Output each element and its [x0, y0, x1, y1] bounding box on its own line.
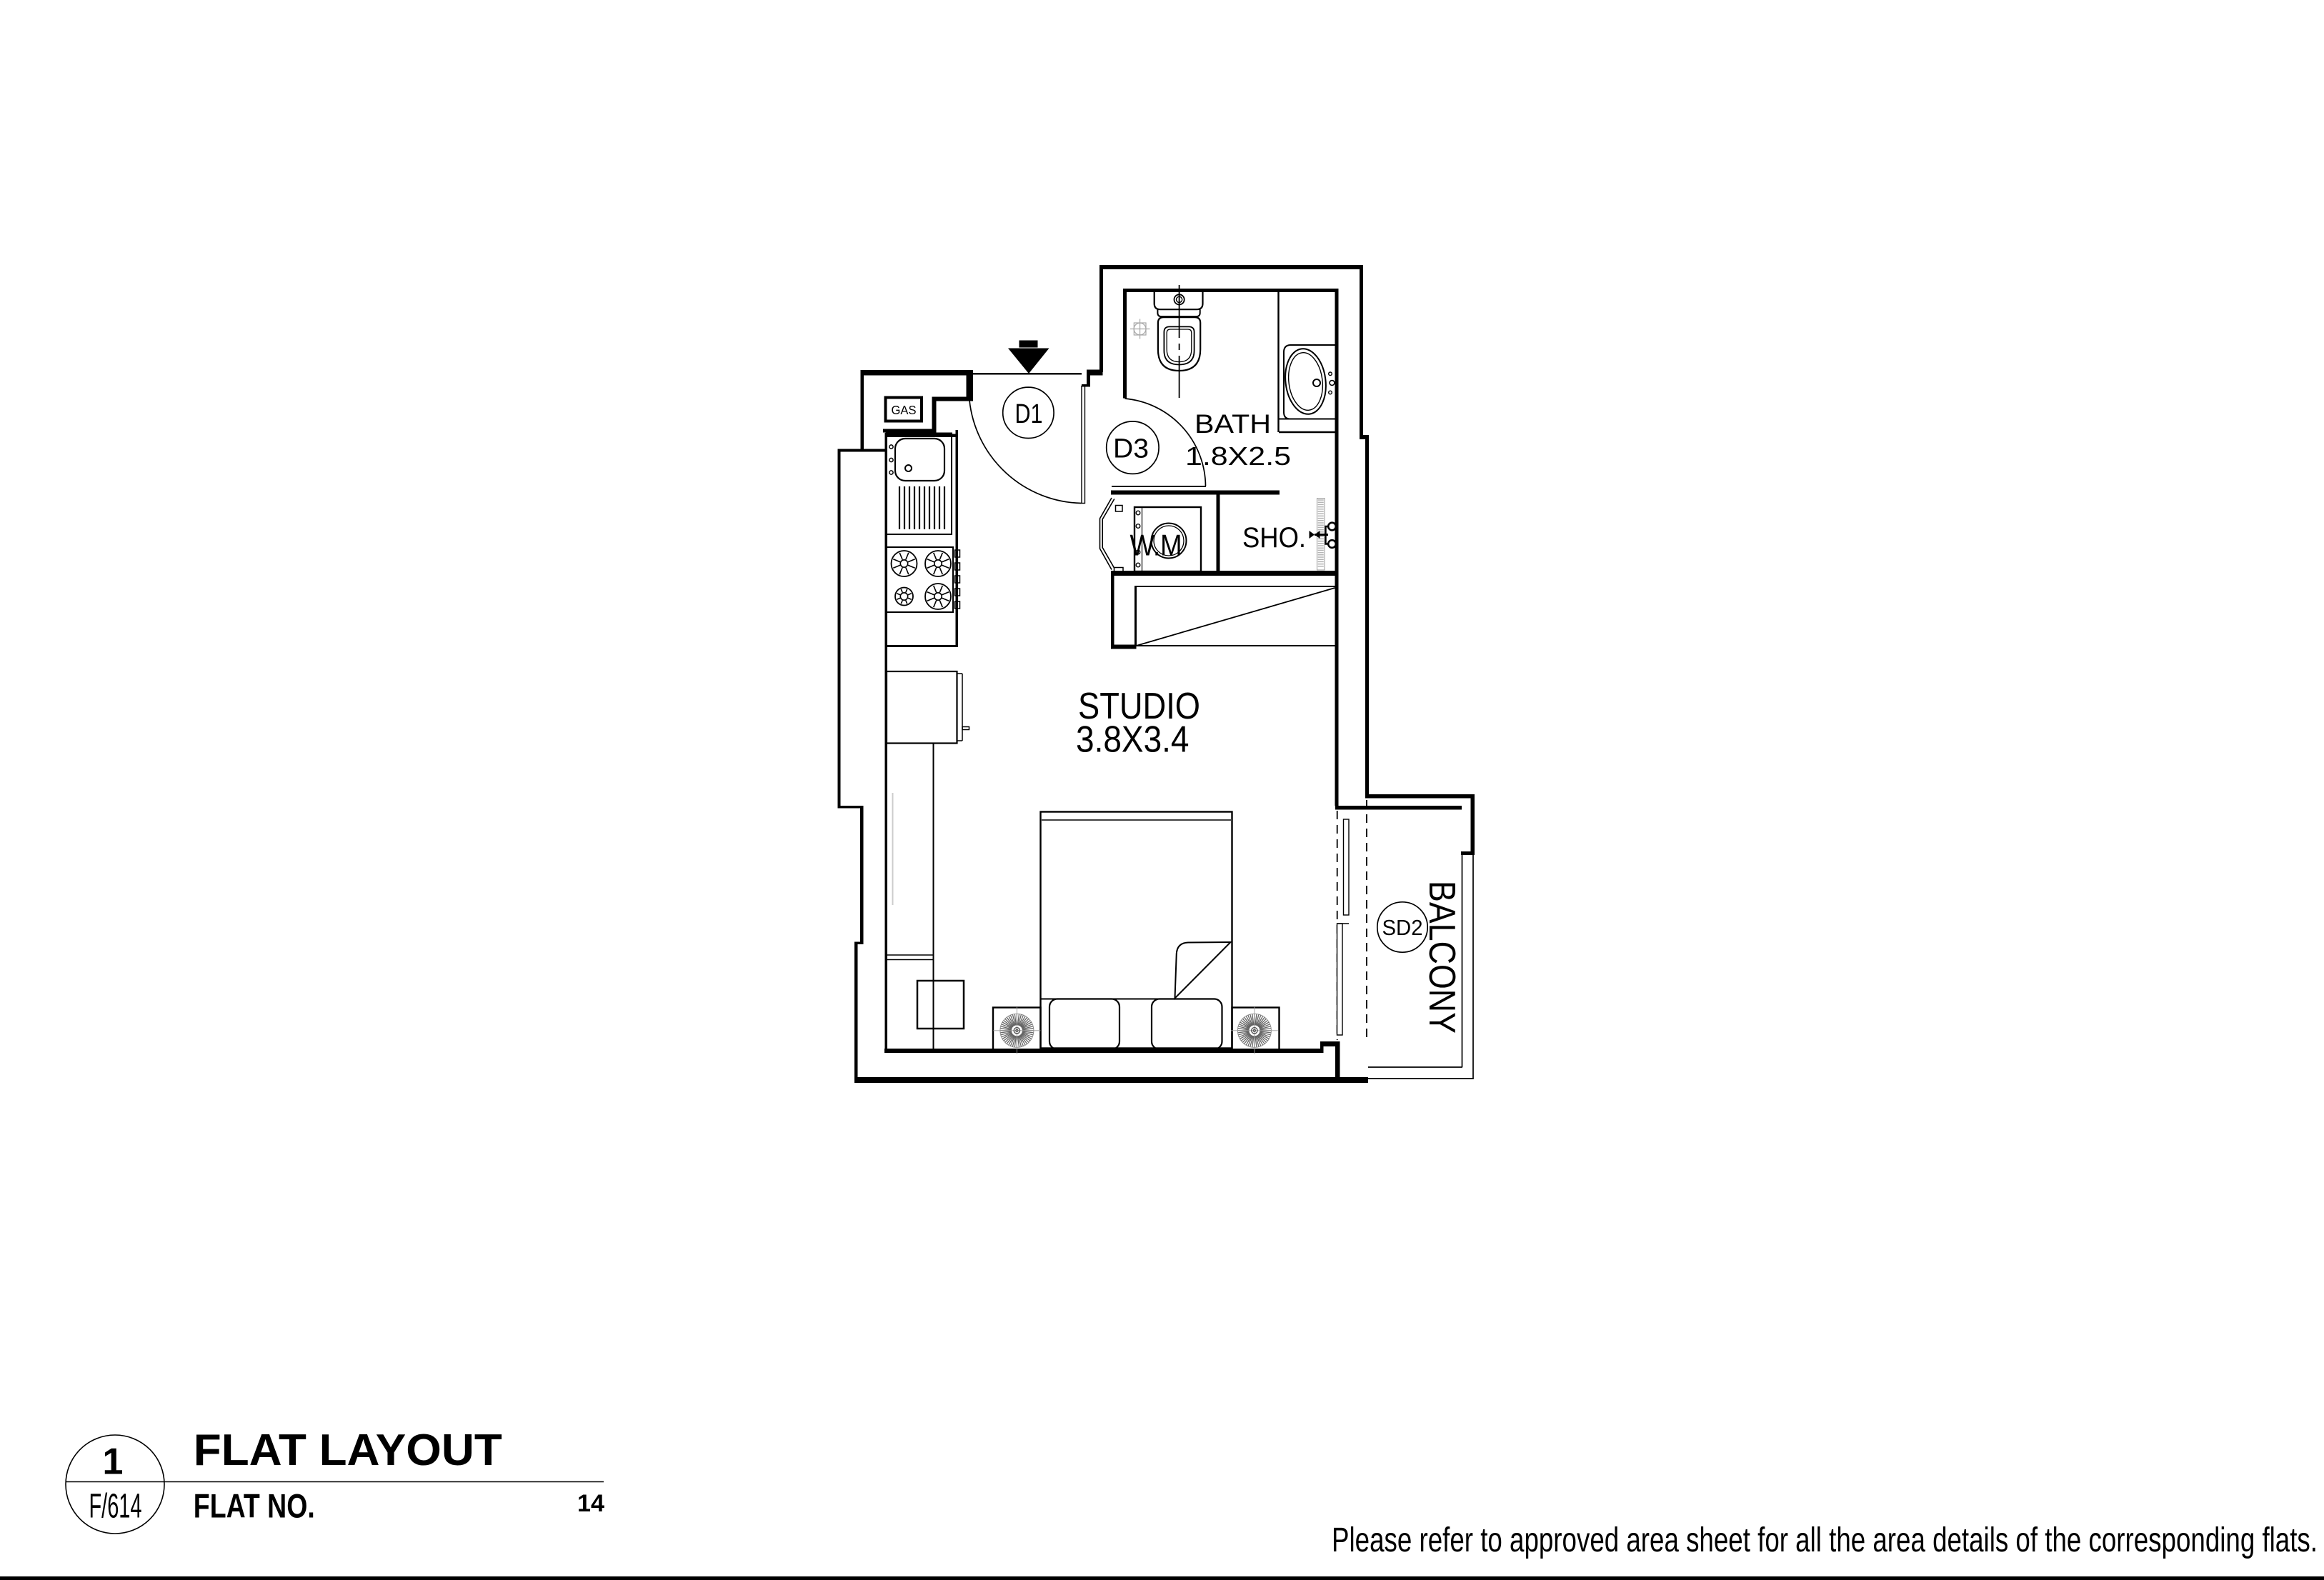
svg-text:F/614: F/614: [89, 1488, 142, 1526]
svg-text:Please refer to approved area: Please refer to approved area sheet for …: [1332, 1521, 2318, 1559]
svg-text:BATH: BATH: [1195, 409, 1271, 439]
svg-text:D1: D1: [1015, 399, 1043, 429]
svg-text:FLAT NO.: FLAT NO.: [194, 1487, 315, 1525]
svg-text:GAS: GAS: [892, 403, 917, 417]
svg-text:W.M: W.M: [1130, 529, 1182, 562]
svg-text:1.8X2.5: 1.8X2.5: [1185, 441, 1291, 471]
svg-text:1: 1: [103, 1441, 124, 1483]
svg-text:SD2: SD2: [1382, 915, 1423, 940]
svg-text:BALCONY: BALCONY: [1421, 881, 1462, 1034]
svg-text:SHO.: SHO.: [1242, 522, 1306, 554]
svg-text:FLAT LAYOUT: FLAT LAYOUT: [194, 1426, 502, 1475]
svg-text:14: 14: [577, 1490, 604, 1517]
svg-text:D3: D3: [1113, 434, 1149, 464]
svg-text:3.8X3.4: 3.8X3.4: [1076, 719, 1190, 761]
